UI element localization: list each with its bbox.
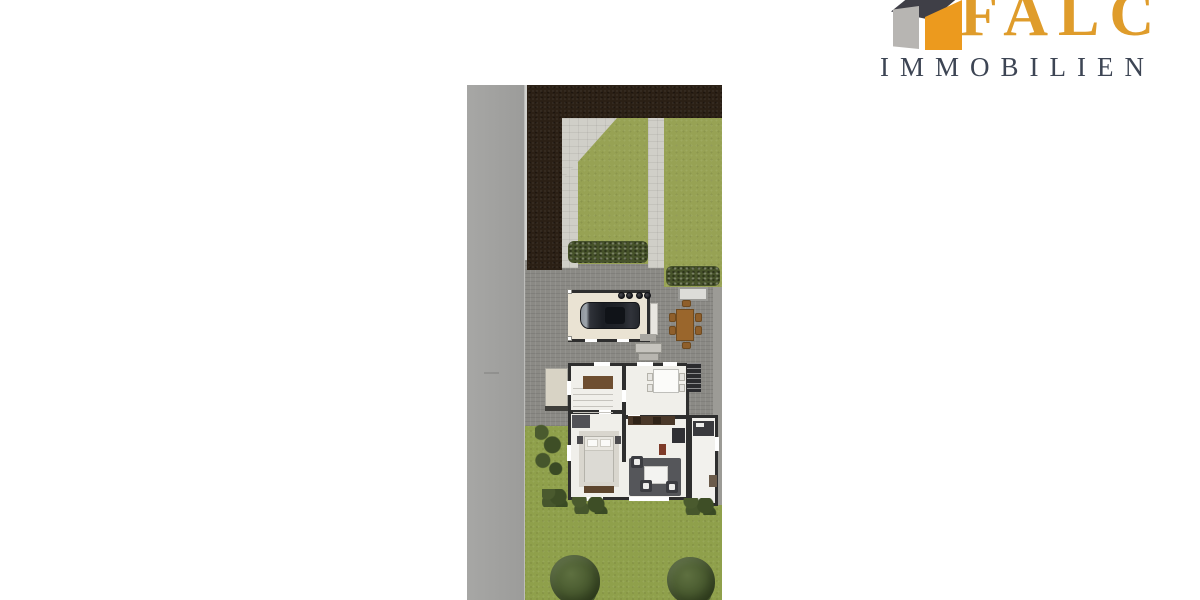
carport-gap — [585, 339, 597, 342]
kitchen-table — [653, 369, 679, 393]
dining-chair — [695, 326, 702, 335]
window — [663, 362, 677, 366]
carport-gap — [617, 339, 629, 342]
window — [567, 445, 571, 461]
kitchen-counter-block — [633, 417, 641, 424]
dining-chair — [695, 313, 702, 322]
blanket — [585, 450, 613, 482]
tree — [667, 557, 715, 600]
car — [580, 302, 640, 329]
pillow — [600, 439, 611, 447]
pillow — [587, 439, 598, 447]
brand-subtitle-text: IMMOBILIEN — [880, 54, 1155, 81]
kitchen-chair — [679, 373, 685, 381]
sideboard-accent — [659, 444, 666, 455]
stair-landing — [583, 376, 613, 389]
dining-table — [676, 309, 694, 341]
interior-door — [622, 390, 626, 402]
dining-chair — [669, 326, 676, 335]
shrub-cluster — [542, 489, 568, 507]
shrub-cluster — [535, 423, 563, 475]
site-plan — [467, 85, 722, 600]
shrub-row-left — [568, 241, 648, 263]
street-marking — [484, 372, 499, 374]
kitchen-chair — [647, 373, 653, 381]
window — [715, 437, 719, 451]
window — [594, 362, 610, 366]
annex-cabinet-top — [696, 423, 704, 427]
wardrobe — [572, 415, 590, 428]
logo-house-left-face-icon — [893, 6, 919, 49]
brand-text: FALC — [960, 0, 1164, 46]
interior-wall — [622, 366, 626, 462]
dining-chair — [669, 313, 676, 322]
kitchen-chair — [647, 384, 653, 392]
garden-bench — [678, 287, 708, 301]
fireplace — [672, 428, 685, 443]
side-shed-roof-edge — [545, 406, 568, 411]
dresser — [584, 486, 614, 493]
street — [467, 85, 525, 600]
entrance-door — [637, 362, 653, 366]
dining-chair — [682, 342, 691, 349]
side-shed — [545, 368, 568, 411]
entrance-step — [635, 343, 662, 353]
kitchen-chair — [679, 384, 685, 392]
shrub-cluster — [683, 498, 719, 515]
cellar-stairs — [687, 363, 701, 392]
armchair — [666, 481, 678, 493]
waste-bin — [618, 292, 625, 299]
page: FALC IMMOBILIEN — [0, 0, 1200, 600]
shrub-cluster — [570, 497, 612, 514]
armchair — [640, 480, 652, 492]
front-lawn-right — [664, 118, 722, 287]
nightstand — [615, 436, 621, 444]
carport-post — [567, 289, 572, 294]
garden-path-center — [648, 118, 664, 268]
carport-side-step — [650, 303, 658, 335]
waste-bin — [644, 292, 651, 299]
falc-logo: FALC IMMOBILIEN — [878, 0, 1200, 92]
carport-post — [567, 336, 572, 341]
terrace-window — [629, 497, 669, 501]
door-mat — [640, 334, 656, 341]
tree — [550, 555, 600, 600]
entrance-step — [638, 353, 659, 361]
staircase — [573, 388, 613, 418]
dining-chair — [682, 300, 691, 307]
nightstand — [577, 436, 583, 444]
shrub-row-right — [666, 266, 720, 286]
hedge-left — [527, 85, 562, 270]
kitchen-counter-block — [653, 417, 661, 424]
window — [567, 381, 571, 395]
annex-chair — [709, 475, 717, 487]
waste-bin — [626, 292, 633, 299]
waste-bin — [636, 292, 643, 299]
armchair — [631, 456, 643, 468]
